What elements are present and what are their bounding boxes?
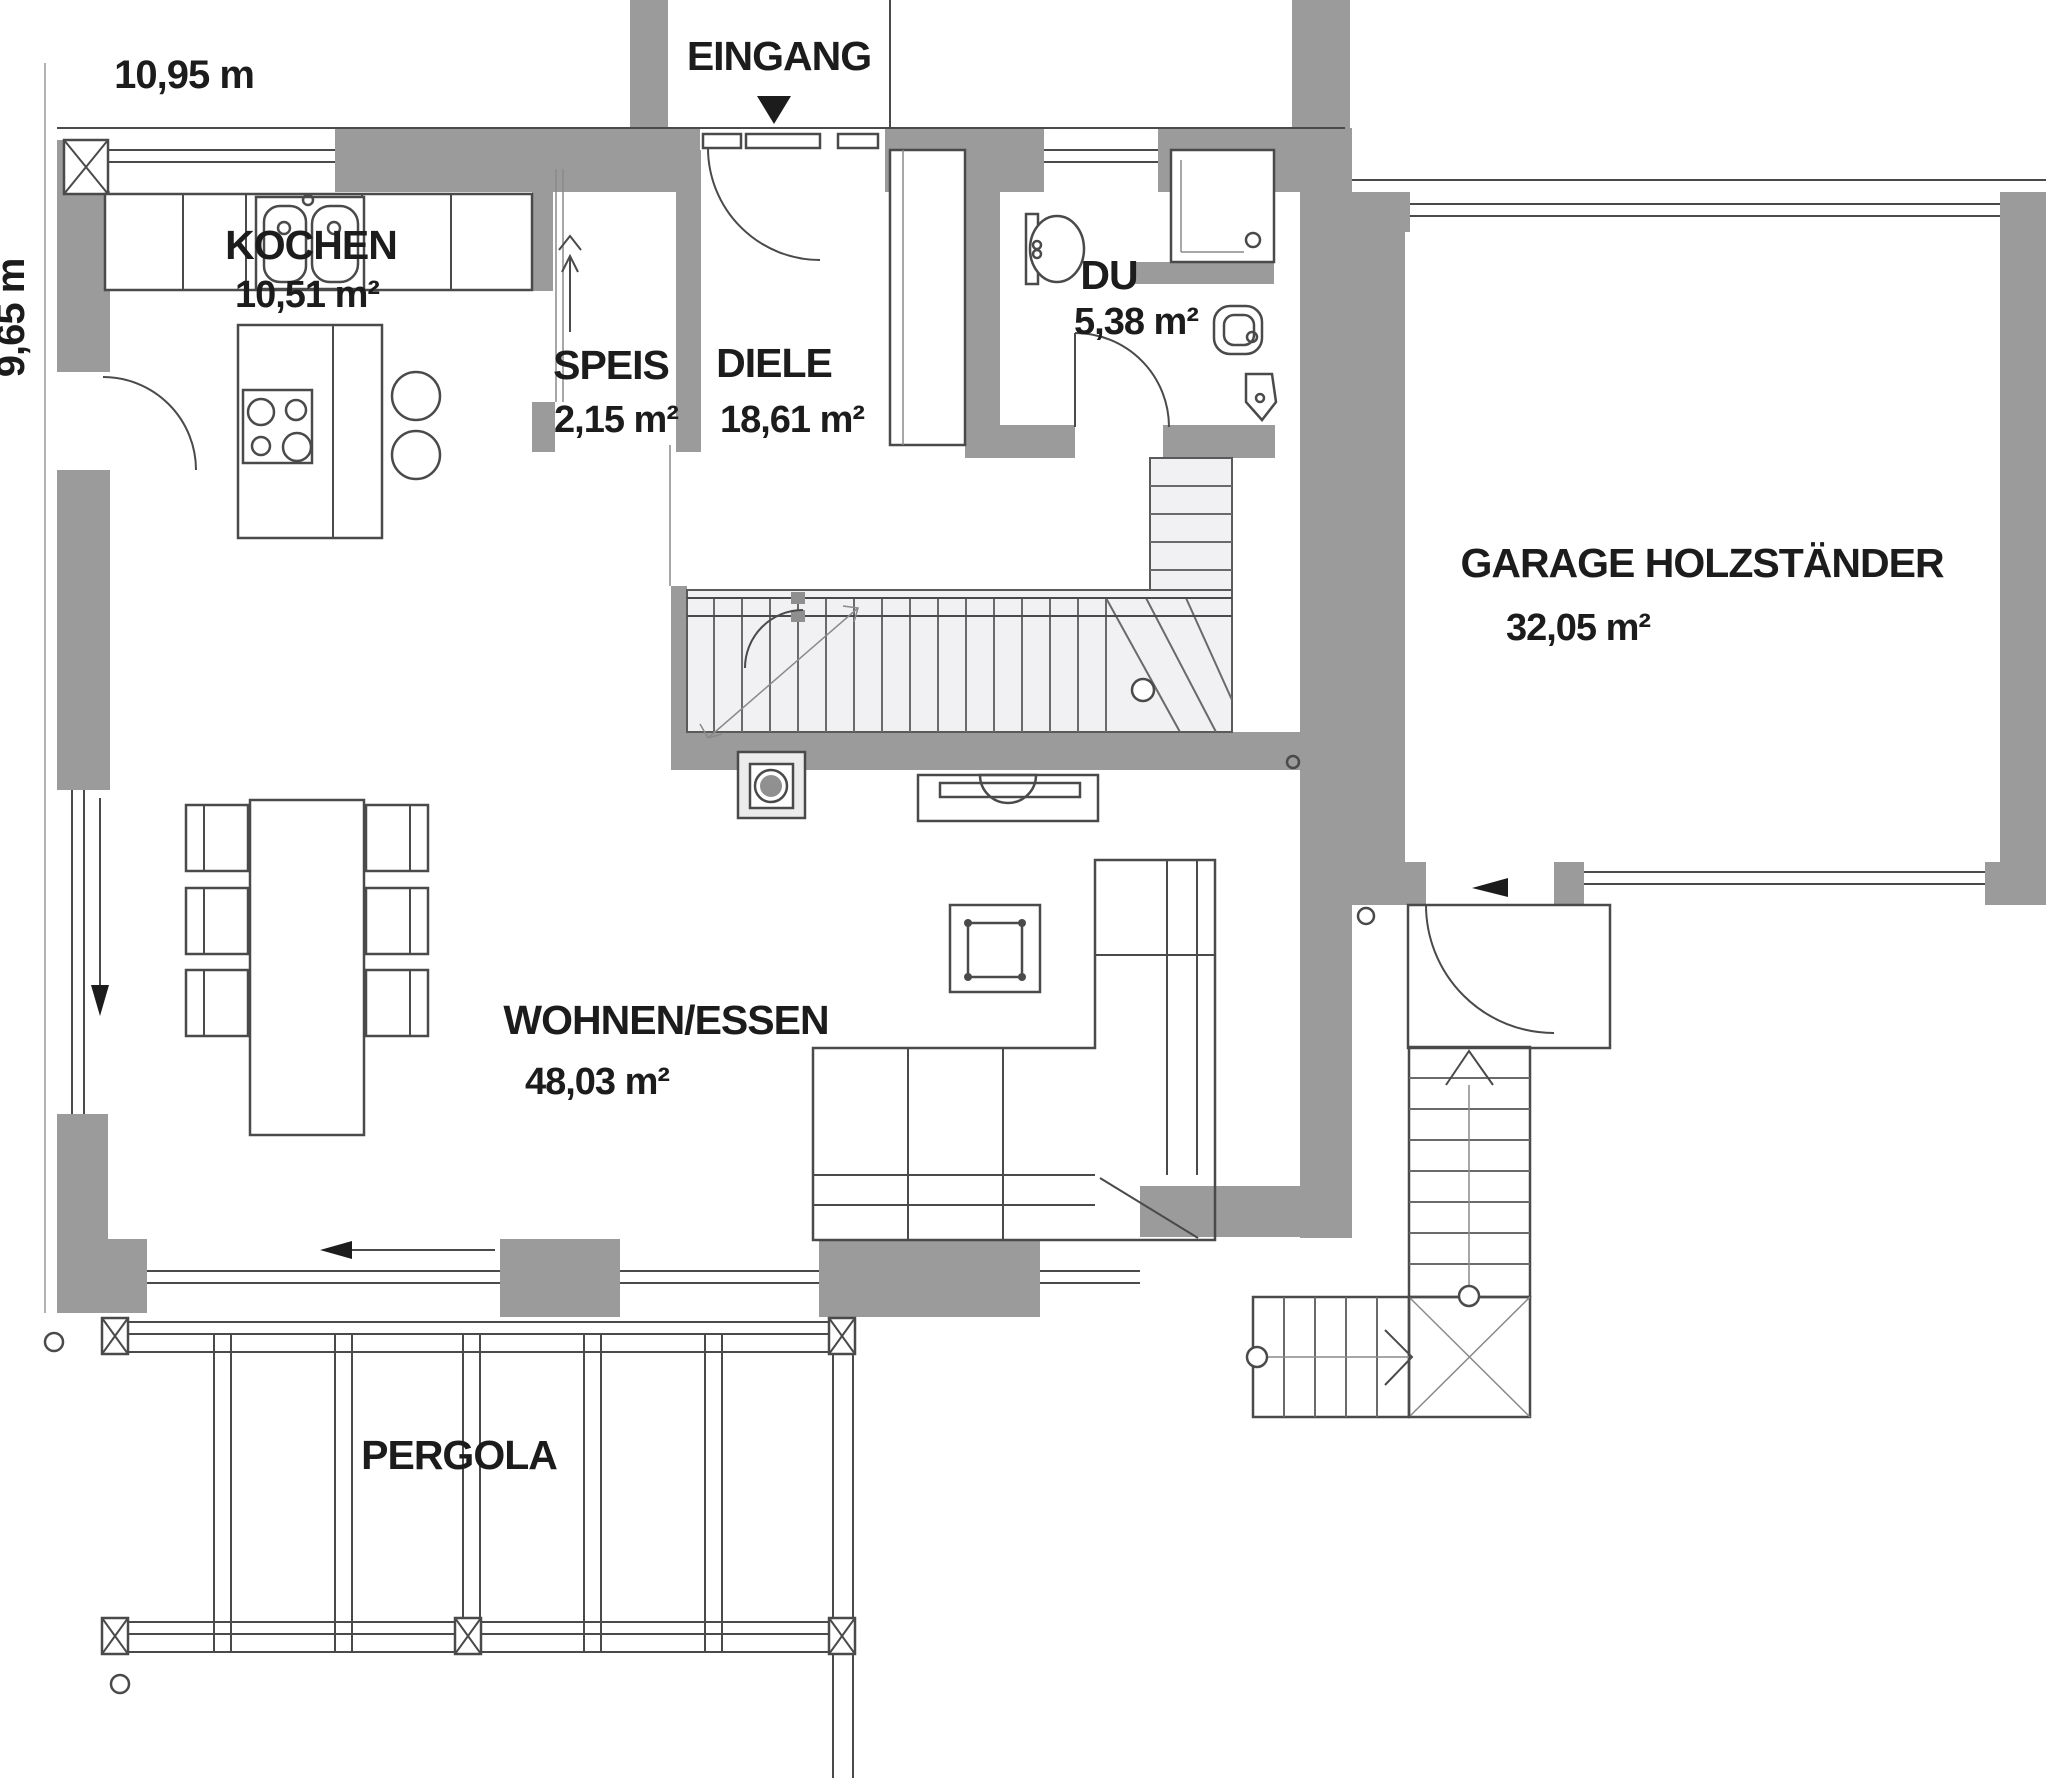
du-door-swing xyxy=(1075,333,1169,427)
bottom-wall-b xyxy=(819,1239,1040,1317)
stair-left-wall xyxy=(671,586,687,736)
exterior-stair-upper xyxy=(1409,1047,1530,1297)
garage-entry-arrow-icon xyxy=(1472,878,1508,897)
living-dining-furniture xyxy=(186,752,1215,1240)
floorplan-canvas: 10,95 m 9,65 m EINGANG KOCHEN 10,51 m² S… xyxy=(0,0,2058,1778)
height-dimension-label: 9,65 m xyxy=(0,259,33,378)
entrance-sidelight-left xyxy=(703,134,741,148)
shower-half-wall xyxy=(1135,262,1274,284)
stair-run xyxy=(687,590,1232,732)
corner-sofa xyxy=(813,860,1215,1240)
room-label-pergola: PERGOLA xyxy=(361,1432,557,1478)
width-dimension-label: 10,95 m xyxy=(114,53,254,97)
entrance-door-swing xyxy=(708,148,820,260)
room-label-garage: GARAGE HOLZSTÄNDER xyxy=(1460,540,1944,586)
room-label-speis: SPEIS xyxy=(553,342,669,388)
right-wall xyxy=(1300,128,1352,1238)
room-area-kochen: 10,51 m² xyxy=(235,274,379,316)
bar-stool-1 xyxy=(392,372,440,420)
garage-door-swing xyxy=(1426,905,1554,1033)
left-slide-arrow-head xyxy=(91,985,109,1016)
du-bottom-wall-a xyxy=(965,425,1075,458)
pergola-footing-1 xyxy=(45,1333,63,1351)
tv-sideboard xyxy=(918,775,1098,821)
room-area-wohnen: 48,03 m² xyxy=(525,1061,669,1103)
flue-disc xyxy=(760,775,782,797)
stair-up-chevron xyxy=(1446,1051,1493,1085)
pergola-top-beam xyxy=(108,1322,855,1352)
room-area-speis: 2,15 m² xyxy=(554,399,678,441)
du-left-wall xyxy=(965,128,1000,458)
room-area-du: 5,38 m² xyxy=(1074,301,1198,343)
coffee-table xyxy=(950,905,1040,992)
speis-left-wall-a xyxy=(532,169,553,291)
floorplan-drawing: 10,95 m 9,65 m EINGANG KOCHEN 10,51 m² S… xyxy=(0,0,2058,1778)
garage-left-wall xyxy=(1352,192,1405,905)
room-label-du: DU xyxy=(1080,252,1137,298)
dining-table xyxy=(250,800,364,1135)
du-bottom-wall-b xyxy=(1163,425,1275,458)
dining-set xyxy=(186,800,428,1135)
post-icon xyxy=(102,1618,128,1654)
stair-door-post-2 xyxy=(791,610,805,622)
stair-rail-post-2 xyxy=(1459,1286,1479,1306)
left-bottom-corner xyxy=(57,1239,147,1313)
toilet-icon xyxy=(1214,306,1262,354)
garage-top-window xyxy=(1410,193,2000,231)
stair-door-post-1 xyxy=(791,592,805,604)
post-icon xyxy=(829,1618,855,1654)
bottom-wall-a xyxy=(500,1239,620,1317)
garage-top-corner-left xyxy=(1352,192,1410,232)
room-label-wohnen: WOHNEN/ESSEN xyxy=(503,997,828,1043)
kitchen-door-swing xyxy=(103,377,196,470)
exterior-stair-lower xyxy=(1247,1297,1412,1417)
pergola-slats xyxy=(214,1334,722,1652)
pergola-structure xyxy=(45,1318,855,1778)
exterior-stair-landing xyxy=(1409,1297,1530,1417)
hall-closet xyxy=(890,150,965,445)
speis-right-wall xyxy=(676,150,701,452)
kitchen-window xyxy=(103,129,335,191)
pergola-footing-2 xyxy=(111,1675,129,1693)
entry-pad xyxy=(1408,905,1610,1048)
room-area-diele: 18,61 m² xyxy=(720,399,864,441)
entrance-sidelight-right xyxy=(838,134,878,148)
garage-right-wall xyxy=(2000,192,2046,905)
du-window xyxy=(1044,129,1158,191)
porch-left-wall xyxy=(630,0,668,128)
fireplace-icon xyxy=(738,752,805,818)
kitchen-island xyxy=(238,325,382,538)
post-icon xyxy=(455,1618,481,1654)
stair-rail-post-1 xyxy=(1247,1347,1267,1367)
bottom-slide-arrow-head xyxy=(320,1241,352,1259)
garage-bottom-corner xyxy=(1985,862,2046,905)
stair-newel-post xyxy=(1132,679,1154,701)
wall-band-before-garage xyxy=(1292,0,1350,128)
entrance-label: EINGANG xyxy=(687,33,871,79)
entrance-door-leaf xyxy=(746,134,820,148)
entrance-arrow-icon xyxy=(757,96,791,124)
post-icon xyxy=(829,1318,855,1354)
garage-bottom-wall-a xyxy=(1352,862,1426,905)
cooktop-icon xyxy=(243,390,312,463)
corner-post-icon xyxy=(64,140,108,194)
downpipe-icon-1 xyxy=(1358,908,1374,924)
room-area-garage: 32,05 m² xyxy=(1506,607,1650,649)
post-icon xyxy=(102,1318,128,1354)
bar-stool-2 xyxy=(392,431,440,479)
garage-bottom-pier xyxy=(1554,862,1584,905)
washbasin-icon xyxy=(1026,214,1084,284)
interior-staircase xyxy=(670,445,1232,738)
room-label-diele: DIELE xyxy=(716,340,832,386)
speis-left-wall-b xyxy=(532,402,555,452)
left-wall-b xyxy=(57,470,110,790)
room-label-kochen: KOCHEN xyxy=(225,222,397,268)
corner-basin-icon xyxy=(1246,374,1276,420)
top-wall-a xyxy=(335,128,700,192)
shower-icon xyxy=(1171,150,1274,262)
